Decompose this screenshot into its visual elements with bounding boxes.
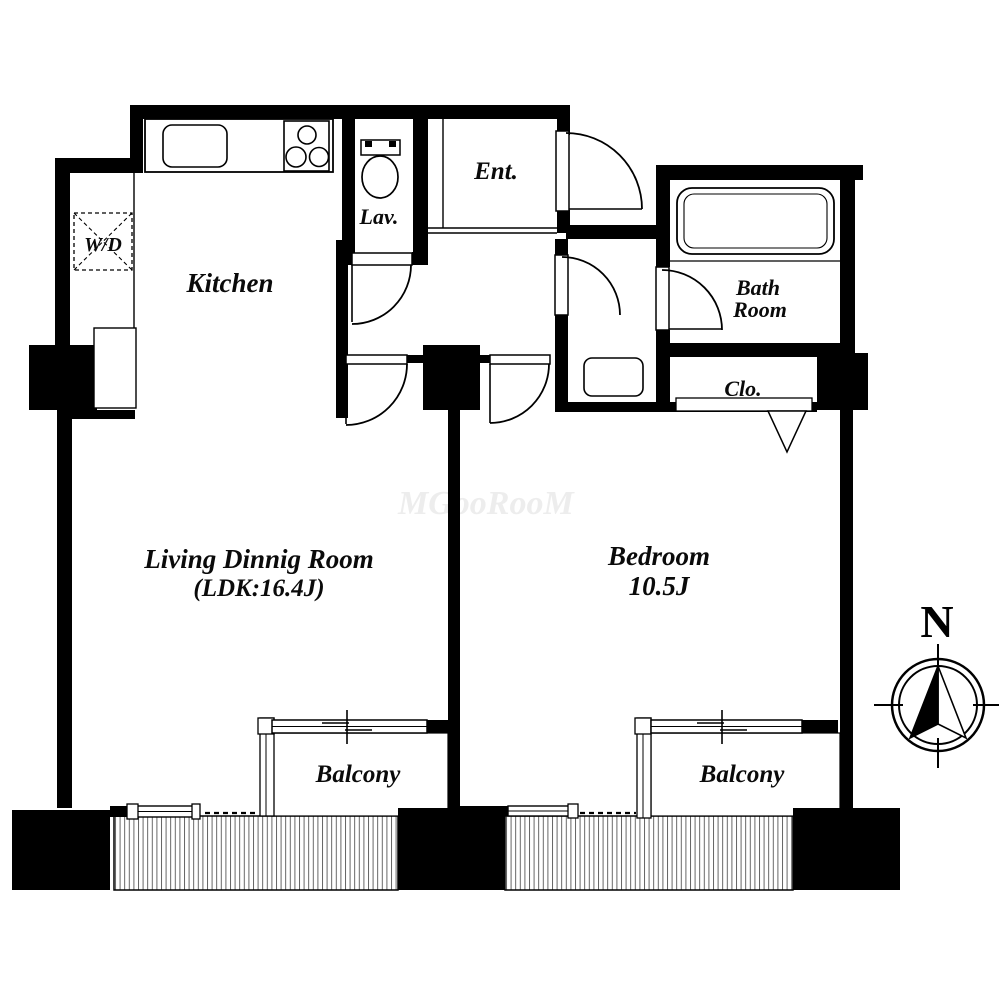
washroom-door	[555, 255, 620, 315]
floor-plan-drawing: MGooRooM	[0, 0, 1000, 1000]
kitchen-counter	[145, 119, 333, 172]
floor-plan-page: MGooRooM	[0, 0, 1000, 1000]
entrance-door	[556, 131, 642, 211]
compass-needle-east	[938, 666, 966, 738]
living-dining-label-line2: (LDK:16.4J)	[193, 575, 324, 602]
bedroom-door	[490, 355, 550, 423]
compass-north-label: N	[920, 596, 953, 647]
bathtub-icon	[677, 188, 834, 254]
bathroom-door	[656, 267, 722, 330]
entrance-label: Ent.	[473, 158, 518, 185]
compass-needle-west	[910, 666, 938, 738]
toilet-icon	[361, 140, 400, 198]
closet-label: Clo.	[724, 376, 761, 401]
washer-dryer-label: W/D	[84, 234, 122, 256]
bathroom-label-line2: Room	[732, 297, 787, 322]
stove-burners-icon	[284, 121, 329, 171]
lavatory-label: Lav.	[359, 204, 399, 229]
balcony-right-label: Balcony	[699, 761, 786, 788]
living-room-door	[346, 355, 407, 425]
lavatory-door	[352, 253, 412, 324]
balcony-left-label: Balcony	[315, 761, 402, 788]
watermark-text: MGooRooM	[397, 485, 575, 522]
bedroom-label-line2: 10.5J	[629, 571, 691, 601]
closet-shelf-icon	[676, 398, 812, 452]
kitchen-sink-icon	[163, 125, 227, 167]
living-dining-label-line1: Living Dinnig Room	[143, 544, 374, 574]
hanger-pipe-icon	[768, 411, 806, 452]
kitchen-label: Kitchen	[185, 268, 273, 298]
compass-icon: N	[874, 596, 999, 768]
bedroom-label-line1: Bedroom	[607, 541, 710, 571]
washing-machine-icon	[584, 358, 643, 396]
